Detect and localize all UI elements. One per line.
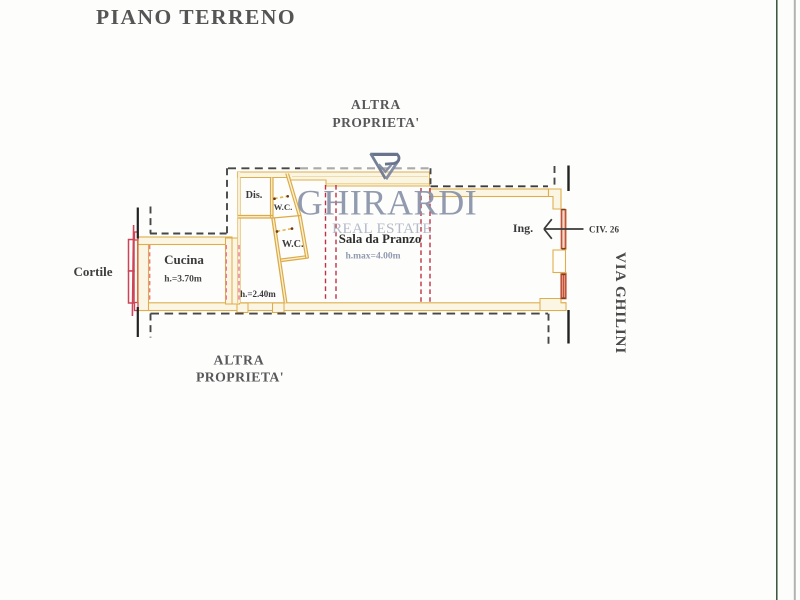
svg-text:h.=3.70m: h.=3.70m [164,275,202,285]
svg-text:CIV. 26: CIV. 26 [589,224,620,234]
svg-text:ALTRA: ALTRA [213,353,264,368]
svg-text:W.C.: W.C. [282,239,304,250]
svg-text:PIANO TERRENO: PIANO TERRENO [96,5,296,29]
svg-text:Dis.: Dis. [246,190,263,201]
svg-text:h.max=4.00m: h.max=4.00m [345,252,400,262]
svg-text:VIA GHILINI: VIA GHILINI [612,252,629,354]
svg-text:Ing.: Ing. [513,221,533,235]
svg-text:Cucina: Cucina [164,252,204,267]
svg-text:Cortile: Cortile [74,264,113,279]
svg-text:ALTRA: ALTRA [351,97,401,112]
svg-text:PROPRIETA': PROPRIETA' [196,370,284,385]
svg-text:PROPRIETA': PROPRIETA' [332,115,419,130]
svg-text:W.C.: W.C. [274,202,293,212]
svg-text:GHIRARDI: GHIRARDI [297,183,478,223]
svg-text:h.=2.40m: h.=2.40m [240,289,276,299]
svg-text:Sala da Pranzo: Sala da Pranzo [339,232,421,246]
